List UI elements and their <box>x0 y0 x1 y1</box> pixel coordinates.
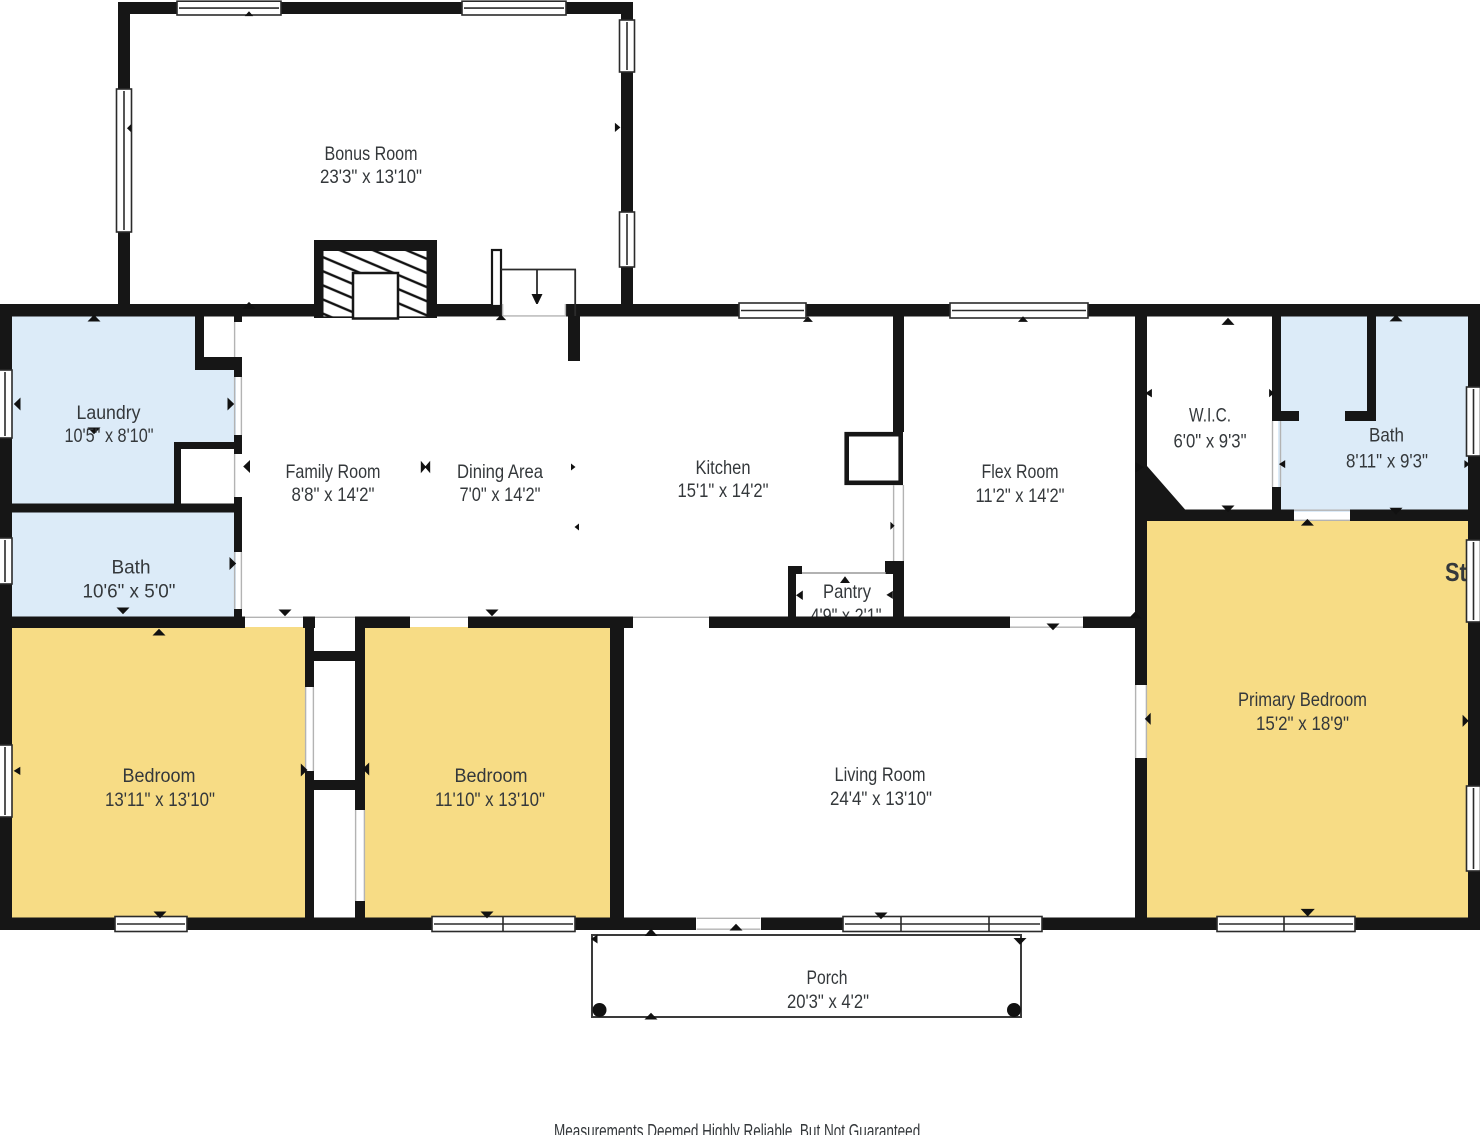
svg-text:7'0" x 14'2": 7'0" x 14'2" <box>460 484 541 506</box>
svg-text:Kitchen: Kitchen <box>696 457 751 479</box>
svg-text:Flex Room: Flex Room <box>982 461 1059 483</box>
svg-text:Bath: Bath <box>1369 425 1404 447</box>
svg-text:Bedroom: Bedroom <box>123 765 196 787</box>
svg-text:11'10" x 13'10": 11'10" x 13'10" <box>435 789 545 811</box>
svg-text:10'6" x 5'0": 10'6" x 5'0" <box>83 581 176 603</box>
svg-text:Bedroom: Bedroom <box>455 765 528 787</box>
svg-text:Measurements Deemed Highly Rel: Measurements Deemed Highly Reliable, But… <box>554 1121 924 1135</box>
svg-text:Living Room: Living Room <box>835 764 926 786</box>
svg-text:Laundry: Laundry <box>77 402 141 424</box>
svg-text:23'3" x 13'10": 23'3" x 13'10" <box>320 166 422 188</box>
svg-text:Bath: Bath <box>112 557 151 579</box>
svg-text:15'1" x 14'2": 15'1" x 14'2" <box>678 480 769 502</box>
svg-text:11'2" x 14'2": 11'2" x 14'2" <box>976 485 1065 507</box>
svg-text:10'5" x 8'10": 10'5" x 8'10" <box>65 425 154 447</box>
svg-text:15'2" x 18'9": 15'2" x 18'9" <box>1256 713 1349 735</box>
svg-text:Family Room: Family Room <box>286 461 381 483</box>
svg-text:Porch: Porch <box>807 967 848 989</box>
svg-text:24'4" x 13'10": 24'4" x 13'10" <box>830 788 932 810</box>
svg-text:W.I.C.: W.I.C. <box>1189 405 1231 427</box>
svg-text:20'3" x 4'2": 20'3" x 4'2" <box>787 991 869 1013</box>
svg-text:Pantry: Pantry <box>823 581 871 603</box>
svg-text:Dining Area: Dining Area <box>457 461 543 483</box>
svg-text:6'0" x 9'3": 6'0" x 9'3" <box>1174 431 1247 453</box>
svg-text:Primary Bedroom: Primary Bedroom <box>1238 689 1367 711</box>
svg-text:13'11" x 13'10": 13'11" x 13'10" <box>105 789 215 811</box>
svg-text:8'11" x 9'3": 8'11" x 9'3" <box>1346 451 1428 473</box>
svg-text:Bonus Room: Bonus Room <box>325 143 418 165</box>
svg-text:8'8" x 14'2": 8'8" x 14'2" <box>292 484 375 506</box>
